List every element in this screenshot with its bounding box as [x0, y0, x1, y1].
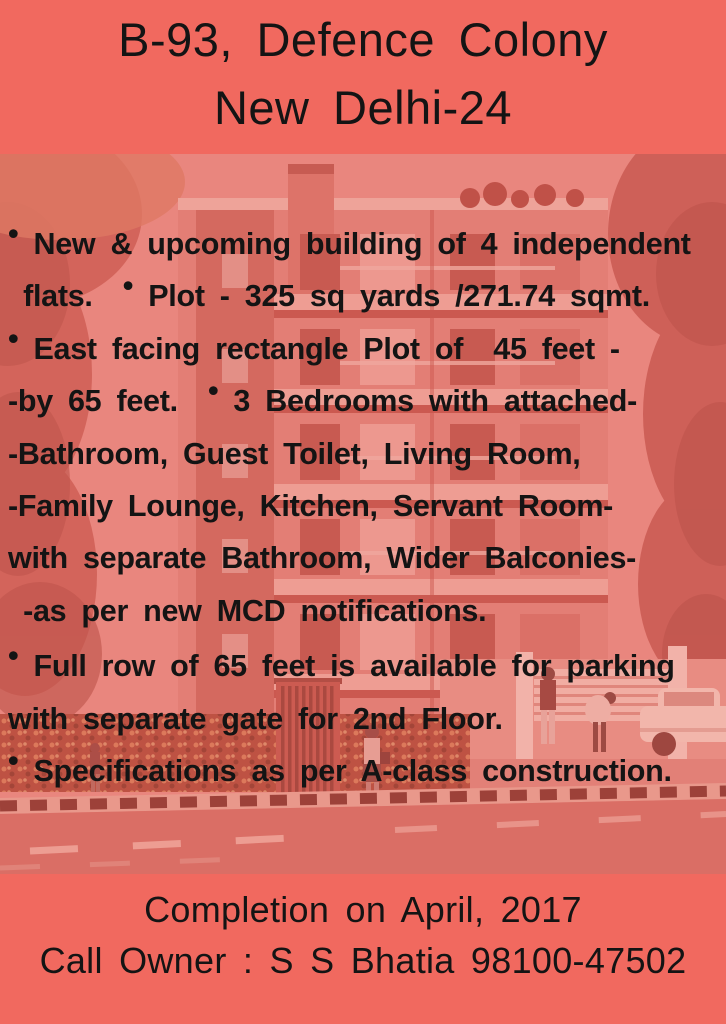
header: B-93, Defence Colony New Delhi-24: [0, 0, 726, 154]
footer: Completion on April, 2017 Call Owner : S…: [0, 874, 726, 1024]
bullet-icon: •: [208, 373, 218, 408]
detail-line: with separate gate for 2nd Floor.: [8, 693, 711, 745]
real-estate-flyer: B-93, Defence Colony New Delhi-24: [0, 0, 726, 1024]
detail-line: -by 65 feet. • 3 Bedrooms with attached-: [8, 375, 711, 427]
property-details: • New & upcoming building of 4 independe…: [0, 154, 726, 874]
detail-line: with separate Bathroom, Wider Balconies-: [8, 532, 711, 584]
detail-line: -as per new MCD notifications.: [8, 585, 711, 637]
detail-line: • New & upcoming building of 4 independe…: [8, 218, 711, 270]
detail-line: • Specifications as per A-class construc…: [8, 745, 711, 797]
bullet-icon: •: [123, 268, 133, 303]
owner-contact: Call Owner : S S Bhatia 98100-47502: [0, 935, 726, 986]
detail-line: -Bathroom, Guest Toilet, Living Room,: [8, 428, 711, 480]
detail-line: -Family Lounge, Kitchen, Servant Room-: [8, 480, 711, 532]
bullet-icon: •: [8, 743, 18, 778]
property-address-line1: B-93, Defence Colony: [0, 6, 726, 74]
detail-line: • Full row of 65 feet is available for p…: [8, 640, 711, 692]
completion-date: Completion on April, 2017: [0, 884, 726, 935]
bullet-icon: •: [8, 638, 18, 673]
detail-line: • East facing rectangle Plot of 45 feet …: [8, 323, 711, 375]
property-address-line2: New Delhi-24: [0, 74, 726, 142]
bullet-icon: •: [8, 215, 18, 250]
detail-line: flats. • Plot - 325 sq yards /271.74 sqm…: [8, 270, 711, 322]
bullet-icon: •: [8, 320, 18, 355]
